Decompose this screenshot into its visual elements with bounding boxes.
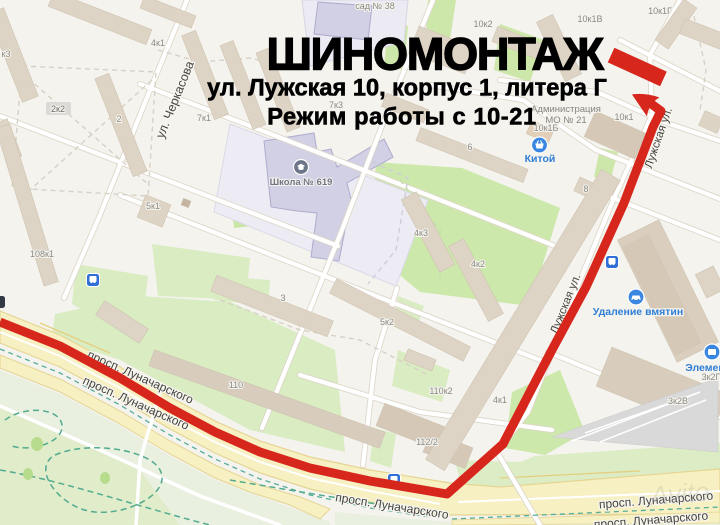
svg-text:Школа № 619: Школа № 619 — [270, 177, 333, 188]
svg-text:10к1Б: 10к1Б — [534, 123, 559, 133]
svg-text:6: 6 — [467, 142, 472, 152]
svg-text:ул. Лужская 10, корпус 1, лите: ул. Лужская 10, корпус 1, литера Г — [207, 76, 607, 102]
svg-text:2: 2 — [116, 114, 121, 124]
svg-text:110к2: 110к2 — [429, 386, 452, 396]
svg-text:112/2: 112/2 — [416, 437, 438, 447]
svg-text:8: 8 — [583, 184, 588, 194]
svg-text:Администрация: Администрация — [531, 104, 601, 115]
svg-text:к3: к3 — [2, 49, 11, 59]
svg-text:Режим работы с 10-21: Режим работы с 10-21 — [267, 105, 536, 131]
svg-text:10к2: 10к2 — [474, 19, 493, 29]
svg-text:10к1Г: 10к1Г — [648, 6, 672, 16]
svg-text:4к2: 4к2 — [471, 259, 485, 269]
svg-text:10к1В: 10к1В — [578, 14, 603, 24]
svg-text:108к1: 108к1 — [30, 249, 54, 259]
svg-text:3к2В: 3к2В — [668, 396, 688, 406]
svg-text:4к1: 4к1 — [151, 38, 165, 48]
svg-text:Элемен: Элемен — [685, 362, 720, 374]
svg-text:3: 3 — [280, 293, 285, 303]
svg-text:4к3: 4к3 — [414, 228, 428, 238]
svg-text:5к1: 5к1 — [146, 201, 160, 211]
svg-text:Китой: Китой — [525, 153, 556, 165]
svg-text:Удаление вмятин: Удаление вмятин — [593, 306, 683, 318]
svg-text:2к2: 2к2 — [51, 104, 65, 114]
svg-text:5к2: 5к2 — [380, 317, 394, 327]
svg-text:110: 110 — [229, 380, 243, 390]
svg-text:сад № 38: сад № 38 — [355, 1, 394, 11]
svg-text:Avito: Avito — [647, 476, 711, 511]
svg-text:ШИНОМОНТАЖ: ШИНОМОНТАЖ — [267, 29, 604, 80]
svg-text:10к1: 10к1 — [615, 112, 634, 122]
svg-text:7к1: 7к1 — [197, 113, 211, 123]
svg-text:4к1: 4к1 — [493, 395, 507, 405]
